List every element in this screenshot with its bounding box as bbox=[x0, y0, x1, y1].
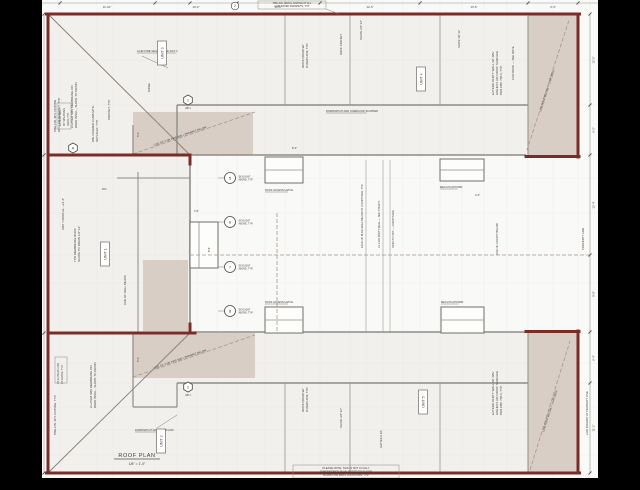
roof-plan-drawing: PRE-FIN. METAL COPING AT ALL2-HR RATED P… bbox=[42, 0, 598, 478]
shaded-band-mid-left bbox=[143, 260, 188, 331]
annotation-text: SLOPE TO DRAIN 1/4":12" bbox=[77, 226, 81, 262]
unit-label: UNIT 4 bbox=[419, 73, 423, 84]
skylight-tag-note: ABOVE, TYP. bbox=[239, 179, 254, 182]
annotation-text: FACE OF BLDG WALL BELOW AT COURTYARD, TY… bbox=[360, 184, 364, 248]
unit-label: UNIT 5 bbox=[421, 396, 425, 407]
dim-text-top: 11'-10" bbox=[103, 5, 111, 9]
dim-text-top: 10'-2" bbox=[192, 5, 199, 9]
drawing-sheet: PRE-FIN. METAL COPING AT ALL2-HR RATED P… bbox=[42, 0, 598, 478]
annotation-text: ROOF ACCESS HATCH bbox=[265, 188, 293, 192]
skylight-tag-note: ABOVE, TYP. bbox=[239, 223, 254, 226]
annotation-text: DOWNSPOUT AND OVERFLOW SCUPPER bbox=[326, 109, 378, 113]
annotation-text: EXTEND WALL bbox=[59, 108, 62, 126]
dim-text-right: 12'-6" bbox=[592, 56, 596, 63]
annotation-text: GUTTER & DS bbox=[379, 430, 383, 448]
annotation-text: PER CBC 706.6, TYP. bbox=[499, 385, 503, 415]
annotation-text: CL 2-HR PARTY WALL — SEE STRUCT. bbox=[377, 200, 381, 248]
annotation-text: 5'-0" bbox=[136, 357, 140, 362]
skylight-tag-note: ABOVE, TYP. bbox=[239, 312, 254, 315]
annotation-text: R.D. bbox=[102, 188, 107, 191]
annotation-text: MECH PLATFORM bbox=[441, 300, 463, 304]
annotation-text: OVERFLOW, TYP. bbox=[305, 43, 309, 68]
annotation-text: ROOF CRICKET bbox=[339, 34, 343, 55]
annotation-text: DOWNSPOUT AND OVERFLOW bbox=[135, 428, 174, 432]
annotation-text: 30" MIN ABOVE bbox=[63, 108, 66, 126]
annotation-text: SKYLIGHT, TYP. bbox=[95, 119, 99, 142]
annotation-text: CRICKET, TYP. bbox=[107, 99, 111, 120]
plan-title: ROOF PLAN bbox=[118, 453, 155, 459]
annotation-text: ROOF ACCESS HATCH bbox=[265, 300, 293, 304]
dim-text-right: 6'-2" bbox=[592, 127, 596, 133]
light-well-rect bbox=[190, 222, 218, 268]
annotation-text: 8'-0" bbox=[292, 146, 297, 150]
keynote-sub: W8.1 bbox=[185, 394, 191, 397]
annotation-text: ROOF, TYP. bbox=[67, 112, 70, 126]
dim-text-right: 11'-2" bbox=[592, 425, 596, 432]
bottom-note-line: DIMENSIONED PLAN. REFER TO FLOOR bbox=[320, 470, 372, 474]
dim-text-top: 6'-3" bbox=[550, 5, 556, 9]
dim-text-right: 12'-4" bbox=[592, 201, 596, 208]
annotation-text: RIGID INSUL., SLOPE TO DRAIN bbox=[93, 362, 97, 408]
annotation-text: SLOPE 1/4":12" bbox=[339, 408, 343, 428]
unit-label: UNIT 1 bbox=[103, 248, 107, 259]
annotation-text: 3'-6" bbox=[194, 210, 199, 213]
unit-label: UNIT 3 bbox=[160, 47, 164, 58]
annotation-text: PRE-FIN. MTL COPING, TYP. bbox=[53, 395, 57, 435]
dim-text-right: 9'-8" bbox=[592, 291, 596, 297]
keynote-sub: W8.1 bbox=[185, 107, 191, 110]
keynote-label: A bbox=[72, 145, 75, 150]
dim-text-top: 13'-6" bbox=[470, 5, 477, 9]
grid-bubble-label: 2 bbox=[234, 4, 236, 8]
annotation-text: DS & OVERFLOW bbox=[57, 363, 60, 384]
dim-text-top: 10'-4" bbox=[274, 5, 281, 9]
annotation-text: SLOPE 1/4":12" bbox=[457, 29, 461, 48]
annotation-text: LOW ROOF — SEE NOTE bbox=[511, 46, 515, 80]
annotation-text: LINE OF WALL BELOW bbox=[123, 275, 127, 305]
screenshot-stage: PRE-FIN. METAL COPING AT ALL2-HR RATED P… bbox=[0, 0, 640, 490]
annotation-text: RIGID INSUL., SLOPE TO DRAIN bbox=[74, 82, 78, 128]
bottom-note-line: PLANS FOR WALL LOCATIONS, TYP. bbox=[323, 473, 369, 477]
annotation-text: RIDGE bbox=[147, 83, 151, 92]
unit-label: UNIT 2 bbox=[159, 435, 163, 446]
skylight-tag-note: ABOVE, TYP. bbox=[239, 268, 254, 271]
annotation-text: OPEN TO SKY — COURTYARD bbox=[391, 210, 395, 248]
annotation-text: OVERFLOW, TYP. bbox=[305, 387, 309, 412]
bottom-note-line: PLEASE NOTE: THIS IS NOT A FULLY bbox=[322, 466, 369, 470]
annotation-text: AT GRADE, TYP. bbox=[61, 365, 64, 384]
annotation-text: PER CBC 706.6, TYP. bbox=[499, 65, 503, 95]
dim-text-right: 6'-4" bbox=[592, 355, 596, 361]
dim-text-top: 12'-6" bbox=[366, 5, 373, 9]
annotation-text: 2-HR PARAPET AT PROPERTY LINE bbox=[585, 391, 589, 435]
annotation-text: SLOPE 1/4":12" bbox=[359, 20, 363, 40]
annotation-text: 8'-6" bbox=[207, 247, 211, 252]
annotation-text: PROPERTY LINE bbox=[581, 228, 585, 250]
annotation-text: 5'-0" bbox=[136, 132, 140, 137]
plan-scale: 1/8" = 1'-0" bbox=[129, 462, 146, 466]
annotation-text: 4'-0" bbox=[475, 193, 480, 197]
shaded-wedge-top-right bbox=[528, 16, 578, 156]
annotation-text: MECH PLATFORM bbox=[440, 185, 462, 189]
annotation-text: LINE OF CANOPY BELOW bbox=[495, 223, 499, 255]
annotation-text: UNIT 1 ROOF EL. +21'-4" bbox=[61, 198, 65, 230]
